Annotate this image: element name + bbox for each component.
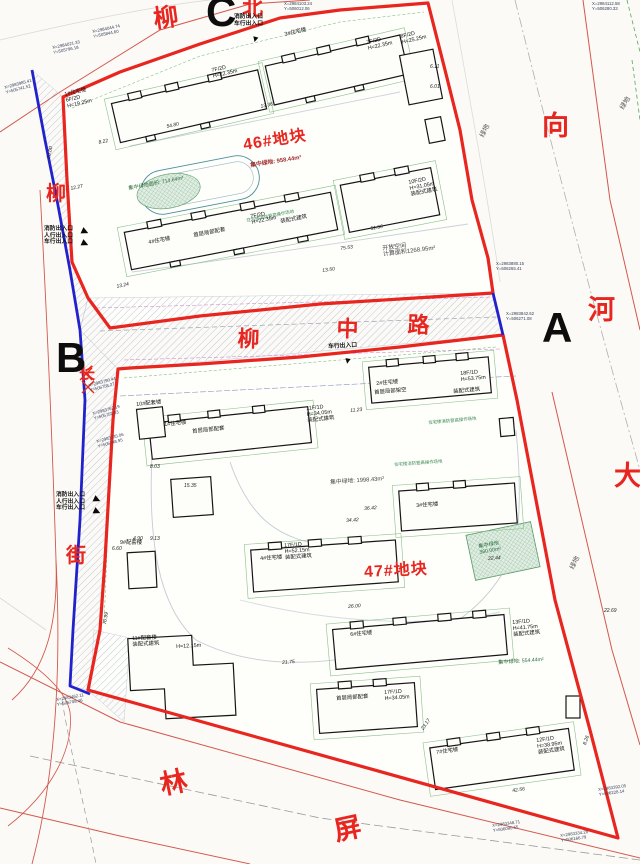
coordinate-tag: X=2984044.74Y=505844.60 [92, 24, 122, 39]
coordinate-tag: X=2983842.62Y=506271.08 [506, 312, 534, 322]
street-name-middle-1: 柳 [237, 326, 260, 352]
street-name-right-1: 向 [542, 114, 569, 139]
dimension-label: 26.00 [348, 603, 361, 610]
open-space-label: 开放空间计算面积1268.95m² [382, 240, 436, 259]
dimension-label: 42.56 [512, 786, 525, 794]
entrance-arrow-icon: ▶ [92, 494, 102, 505]
street-name-top: 柳 [152, 5, 180, 33]
building-label: 首层局部配套 [192, 426, 225, 436]
dimension-label: 12.27 [70, 183, 84, 192]
roadside-green-label: 绿地 [570, 556, 581, 571]
green-area-label-47b: 集中绿地: 554.44m² [498, 657, 544, 666]
building-label: 装配式建筑 [453, 387, 480, 396]
north-arrow-icon: 北 [242, 6, 263, 12]
coordinate-tag: X=2983762.19Y=505752.83 [92, 405, 122, 422]
coordinate-tag: X=2984103.24Y=506012.06 [284, 2, 312, 12]
entrance-arrow-icon: ▶ [80, 238, 90, 249]
dimension-label: 34.42 [346, 517, 359, 524]
street-name-left-1: 柳 [46, 182, 66, 207]
dimension-label: 6.60 [112, 546, 122, 552]
dimension-label: 8.03 [150, 464, 160, 470]
building-label: 2#住宅楼 [376, 379, 399, 387]
fire-lane-label: 住宅楼消防登高操作场地 [394, 459, 443, 469]
dimension-label: 23.17 [420, 718, 432, 732]
corner-label-a: A [542, 308, 572, 348]
building-label: H=12.15m [176, 643, 201, 651]
entrance-arrow-icon: ▼ [342, 356, 352, 366]
building-label: 1#住宅楼 [164, 420, 187, 428]
street-name-bottom-2: 屏 [332, 814, 364, 844]
building-label: 11F/1DH=34.05m装配式建筑 [306, 403, 335, 424]
site-plan: 柳 柳 长 街 柳 中 路 向 河 大 林 屏 C A B 北 46#地块 47… [0, 0, 640, 864]
coordinate-tag: X=2983392.05Y=506228.14 [598, 784, 627, 798]
block-title-47: 47#地块 [364, 567, 428, 577]
entrance-arrow-icon: ▶ [92, 506, 102, 517]
dimension-label: 15.35 [184, 483, 197, 489]
street-name-left-3: 街 [66, 544, 86, 569]
dimension-label: 54.80 [166, 121, 180, 130]
building-label: 1#住宅楼6F/2DH=19.25m [64, 86, 93, 110]
building-label: 4#住宅楼 [260, 554, 283, 562]
building-label: 18F/1DH=53.75m [460, 369, 486, 384]
dimension-label: 13.36 [260, 101, 274, 110]
building-label: 7F/2DH=22.35m [211, 62, 238, 80]
building-label: 17F/1DH=52.15m装配式建筑 [284, 541, 312, 561]
dimension-label: 8.26 [582, 735, 591, 746]
street-name-bottom-1: 林 [158, 768, 190, 798]
building-label: 13F/1DH=41.75m装配式建筑 [512, 618, 540, 639]
entrance-label-top: 消防出入口车行出入口 [234, 14, 263, 27]
entrance-arrow-icon: ▶ [80, 226, 90, 237]
dimension-label: 11.23 [350, 407, 363, 414]
dimension-label: 20.00 [46, 146, 55, 160]
coordinate-tag: X=2983462.11Y=505708.46 [56, 693, 85, 707]
block-title-46: 46#地块 [243, 133, 307, 149]
dimension-label: 22.69 [604, 608, 617, 614]
building-label: 7#住宅楼 [436, 747, 459, 756]
dimension-label: 6.11 [430, 64, 439, 70]
building-label: 首层局部配套 [336, 694, 369, 702]
dimension-label: 51.56 [370, 224, 383, 232]
building-label: 7F/2DH=22.35m [250, 209, 277, 226]
building-label: 10F/2DH=31.05m装配式建筑 [408, 175, 438, 198]
coordinate-tag: X=2983334.28Y=506166.79 [560, 830, 589, 844]
dimension-label: 22.44 [488, 555, 501, 562]
building-label: 3#住宅楼 [416, 501, 439, 509]
oval-green-label: 集中绿地面积: 714.64m² [128, 175, 184, 192]
street-name-right-3: 大 [614, 464, 640, 489]
building-label: 首层局部架空 [374, 387, 407, 396]
dimension-label: 70.99 [102, 612, 110, 625]
dimension-label: 36.42 [364, 505, 377, 512]
building-label: 12F/1DH=38.95m装配式建筑 [536, 734, 565, 756]
building-label: 10#配套楼 [136, 399, 162, 408]
corner-label-c: C [206, 0, 236, 32]
dimension-label: 6.01 [430, 84, 440, 90]
coordinate-tag: X=2983880.15Y=506265.41 [496, 262, 524, 272]
entrance-label-middle: 车行出入口 [328, 342, 357, 350]
coordinate-tag: X=2983735.06Y=505748.95 [96, 433, 126, 450]
street-name-right-2: 河 [588, 298, 615, 323]
green-area-label-46: 集中绿地: 958.44m² [250, 155, 302, 169]
dimension-label: 4.90 [133, 536, 143, 542]
coordinate-tag: X=2983985.41Y=505741.52 [4, 79, 34, 96]
dimension-label: 8.22 [98, 138, 109, 146]
dimension-label: 13.24 [116, 281, 130, 290]
entrance-label-left-upper: 消防出入口人行出入口车行出入口 [44, 226, 73, 246]
dimension-label: 21.75 [282, 659, 295, 666]
fire-lane-label: 住宅楼消防登高操作场地 [428, 416, 477, 426]
green-rect-label: 集中绿地360.00m² [478, 540, 502, 556]
building-label: 6#住宅楼 [350, 630, 373, 638]
corner-label-b: B [56, 338, 86, 378]
building-label: 3#住宅楼 [284, 27, 307, 38]
coordinate-tag: X=2983348.71Y=506090.55 [492, 820, 521, 834]
building-label: 8F/2DH=25.25m [400, 28, 427, 46]
roadside-green-label: 绿地 [620, 96, 632, 111]
entrance-arrow-icon: ▼ [250, 34, 261, 45]
street-name-middle-3: 路 [407, 312, 430, 338]
dimension-label: 13.50 [322, 266, 335, 274]
building-label: 17F/1DH=34.05m [384, 688, 410, 702]
coordinate-tag: X=2984021.33Y=505796.18 [52, 40, 82, 55]
coordinate-tag: X=2984112.58Y=506280.33 [592, 2, 620, 12]
street-name-middle-2: 中 [336, 316, 359, 342]
green-area-label-47: 集中绿地: 1998.43m² [330, 476, 384, 486]
building-label: 首层局部配套 [193, 227, 226, 239]
dimension-label: 9.13 [150, 536, 160, 542]
dimension-label: 75.53 [340, 244, 353, 252]
roadside-green-label: 绿地 [480, 124, 491, 139]
building-label: 11#配套楼装配式建筑 [132, 635, 160, 649]
building-label: 7F/2DH=22.35m [366, 34, 393, 52]
label-layer: 柳 柳 长 街 柳 中 路 向 河 大 林 屏 C A B 北 46#地块 47… [0, 0, 640, 864]
building-label: 4#住宅楼 [148, 236, 171, 246]
entrance-label-left-lower: 消防出入口人行出入口车行出入口 [56, 492, 85, 512]
